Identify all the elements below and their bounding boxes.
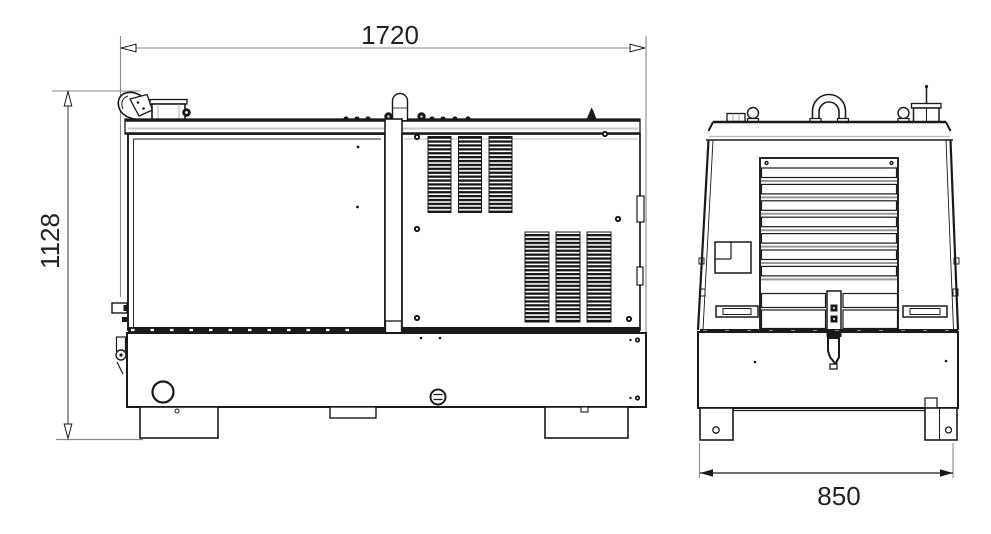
front-base-frame (698, 332, 958, 440)
arrow-right-icon (940, 469, 953, 476)
grille-slats (761, 168, 897, 279)
upper-vent-grille (428, 137, 512, 213)
side-view: 1720 1128 (35, 20, 646, 440)
arrow-right-icon (630, 44, 645, 52)
fuel-cap-right (898, 108, 909, 119)
drawing-canvas: 1720 1128 (0, 0, 991, 534)
fuel-cap-left (748, 108, 759, 119)
lifting-eye (810, 95, 849, 123)
filler-cap (431, 390, 446, 405)
exhaust-cap (912, 85, 942, 122)
arrow-down-icon (64, 424, 72, 439)
front-view: 850 (698, 85, 959, 511)
door-latch-hardware (112, 303, 128, 374)
length-dimension-label: 1720 (361, 20, 419, 50)
tow-hitch (118, 92, 190, 121)
roof-band (125, 119, 640, 134)
name-plate (715, 242, 751, 273)
base-frame (127, 333, 646, 438)
exhaust-pipe (393, 94, 408, 121)
side-door-panel (128, 134, 385, 330)
front-roof-fittings (727, 85, 941, 123)
height-dimension-label: 1128 (35, 213, 65, 269)
front-foot-right (925, 408, 957, 440)
width-dimension: 850 (700, 443, 954, 511)
bottom-tray (330, 407, 376, 418)
front-grille (760, 158, 898, 332)
grille-bottom-panels (762, 291, 898, 332)
arrow-up-icon (64, 92, 72, 107)
arrow-left-icon (700, 469, 713, 476)
front-foot-left (700, 408, 733, 440)
technical-drawing: 1720 1128 (0, 0, 991, 534)
roof-valve-icon (586, 108, 597, 121)
arrow-left-icon (121, 44, 136, 52)
center-divider (385, 119, 402, 330)
engine-panel (402, 131, 644, 330)
lower-vent-grille (525, 232, 611, 322)
width-dimension-label: 850 (817, 481, 860, 511)
drain-hole (153, 382, 174, 403)
